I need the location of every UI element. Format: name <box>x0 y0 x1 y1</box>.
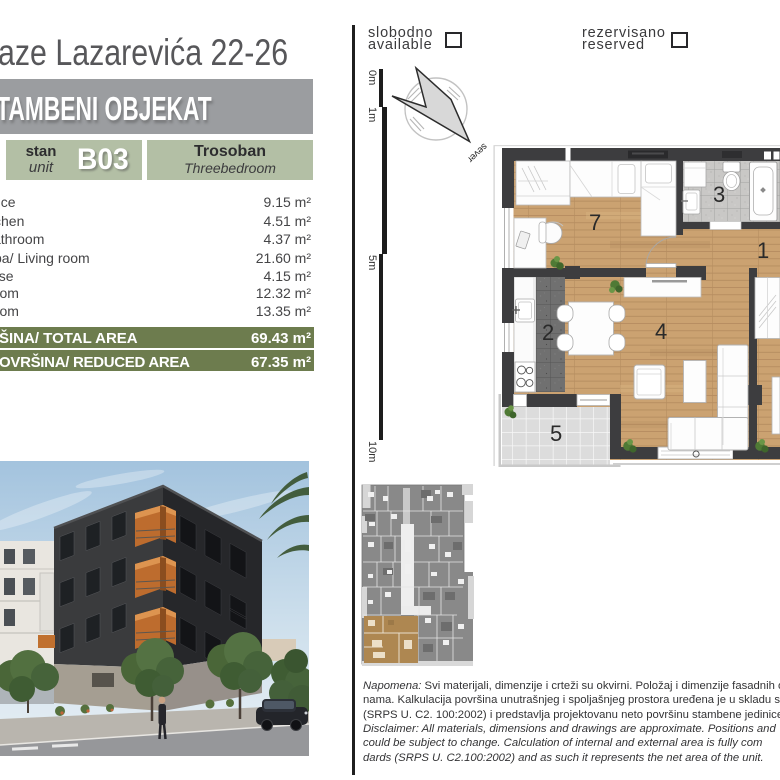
svg-text:2: 2 <box>542 320 554 345</box>
svg-text:sever: sever <box>465 141 489 165</box>
svg-text:7: 7 <box>589 210 601 235</box>
svg-text:1: 1 <box>757 238 769 263</box>
svg-text:5: 5 <box>550 421 562 446</box>
svg-text:3: 3 <box>713 182 725 207</box>
svg-text:4: 4 <box>655 319 667 344</box>
